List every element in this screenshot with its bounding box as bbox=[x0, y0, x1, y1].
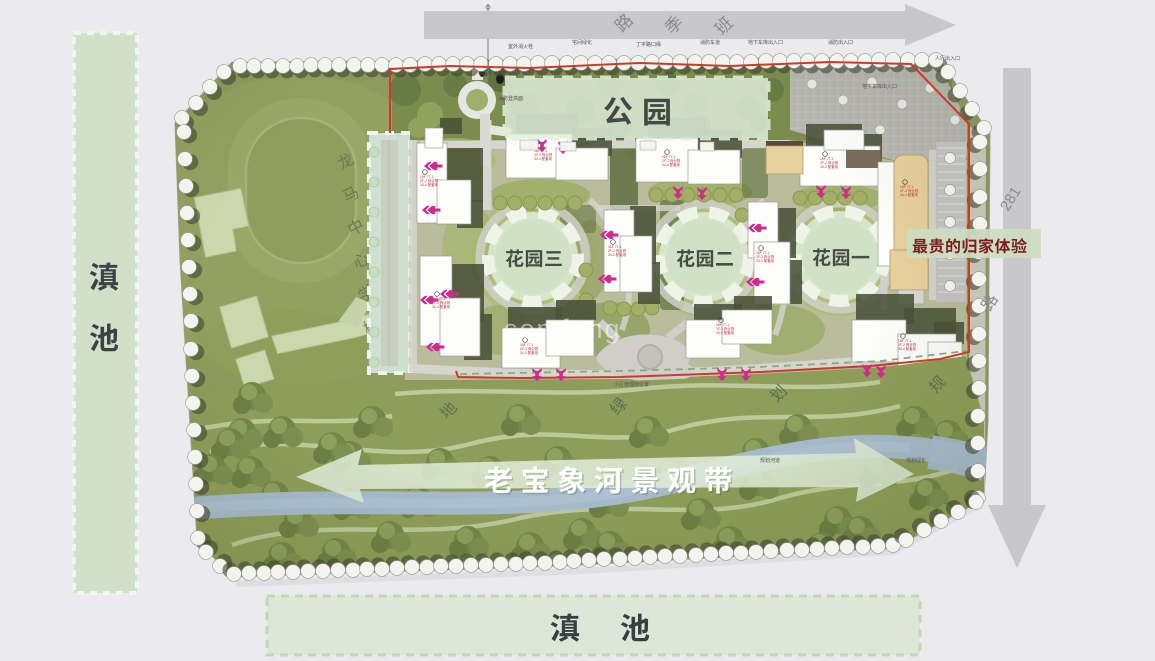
svg-text:消防车道: 消防车道 bbox=[700, 39, 720, 46]
svg-text:消防出入口: 消防出入口 bbox=[828, 39, 853, 46]
svg-text:小区管理用位置: 小区管理用位置 bbox=[614, 381, 649, 388]
svg-text:somfang: somfang bbox=[504, 314, 622, 344]
svg-text:地下车库出入口: 地下车库出入口 bbox=[748, 39, 783, 46]
svg-text:宅间绿化: 宅间绿化 bbox=[572, 39, 592, 46]
svg-text:规划河道: 规划河道 bbox=[760, 457, 780, 464]
svg-text:人行出入口: 人行出入口 bbox=[935, 55, 960, 62]
svg-text:室外消火栓: 室外消火栓 bbox=[508, 43, 533, 50]
svg-text:消防登高面: 消防登高面 bbox=[498, 95, 523, 102]
svg-text:丁字路口缘: 丁字路口缘 bbox=[636, 41, 661, 48]
svg-text:地下车库出入口: 地下车库出入口 bbox=[862, 83, 897, 90]
svg-text:规划绿化: 规划绿化 bbox=[906, 457, 926, 464]
